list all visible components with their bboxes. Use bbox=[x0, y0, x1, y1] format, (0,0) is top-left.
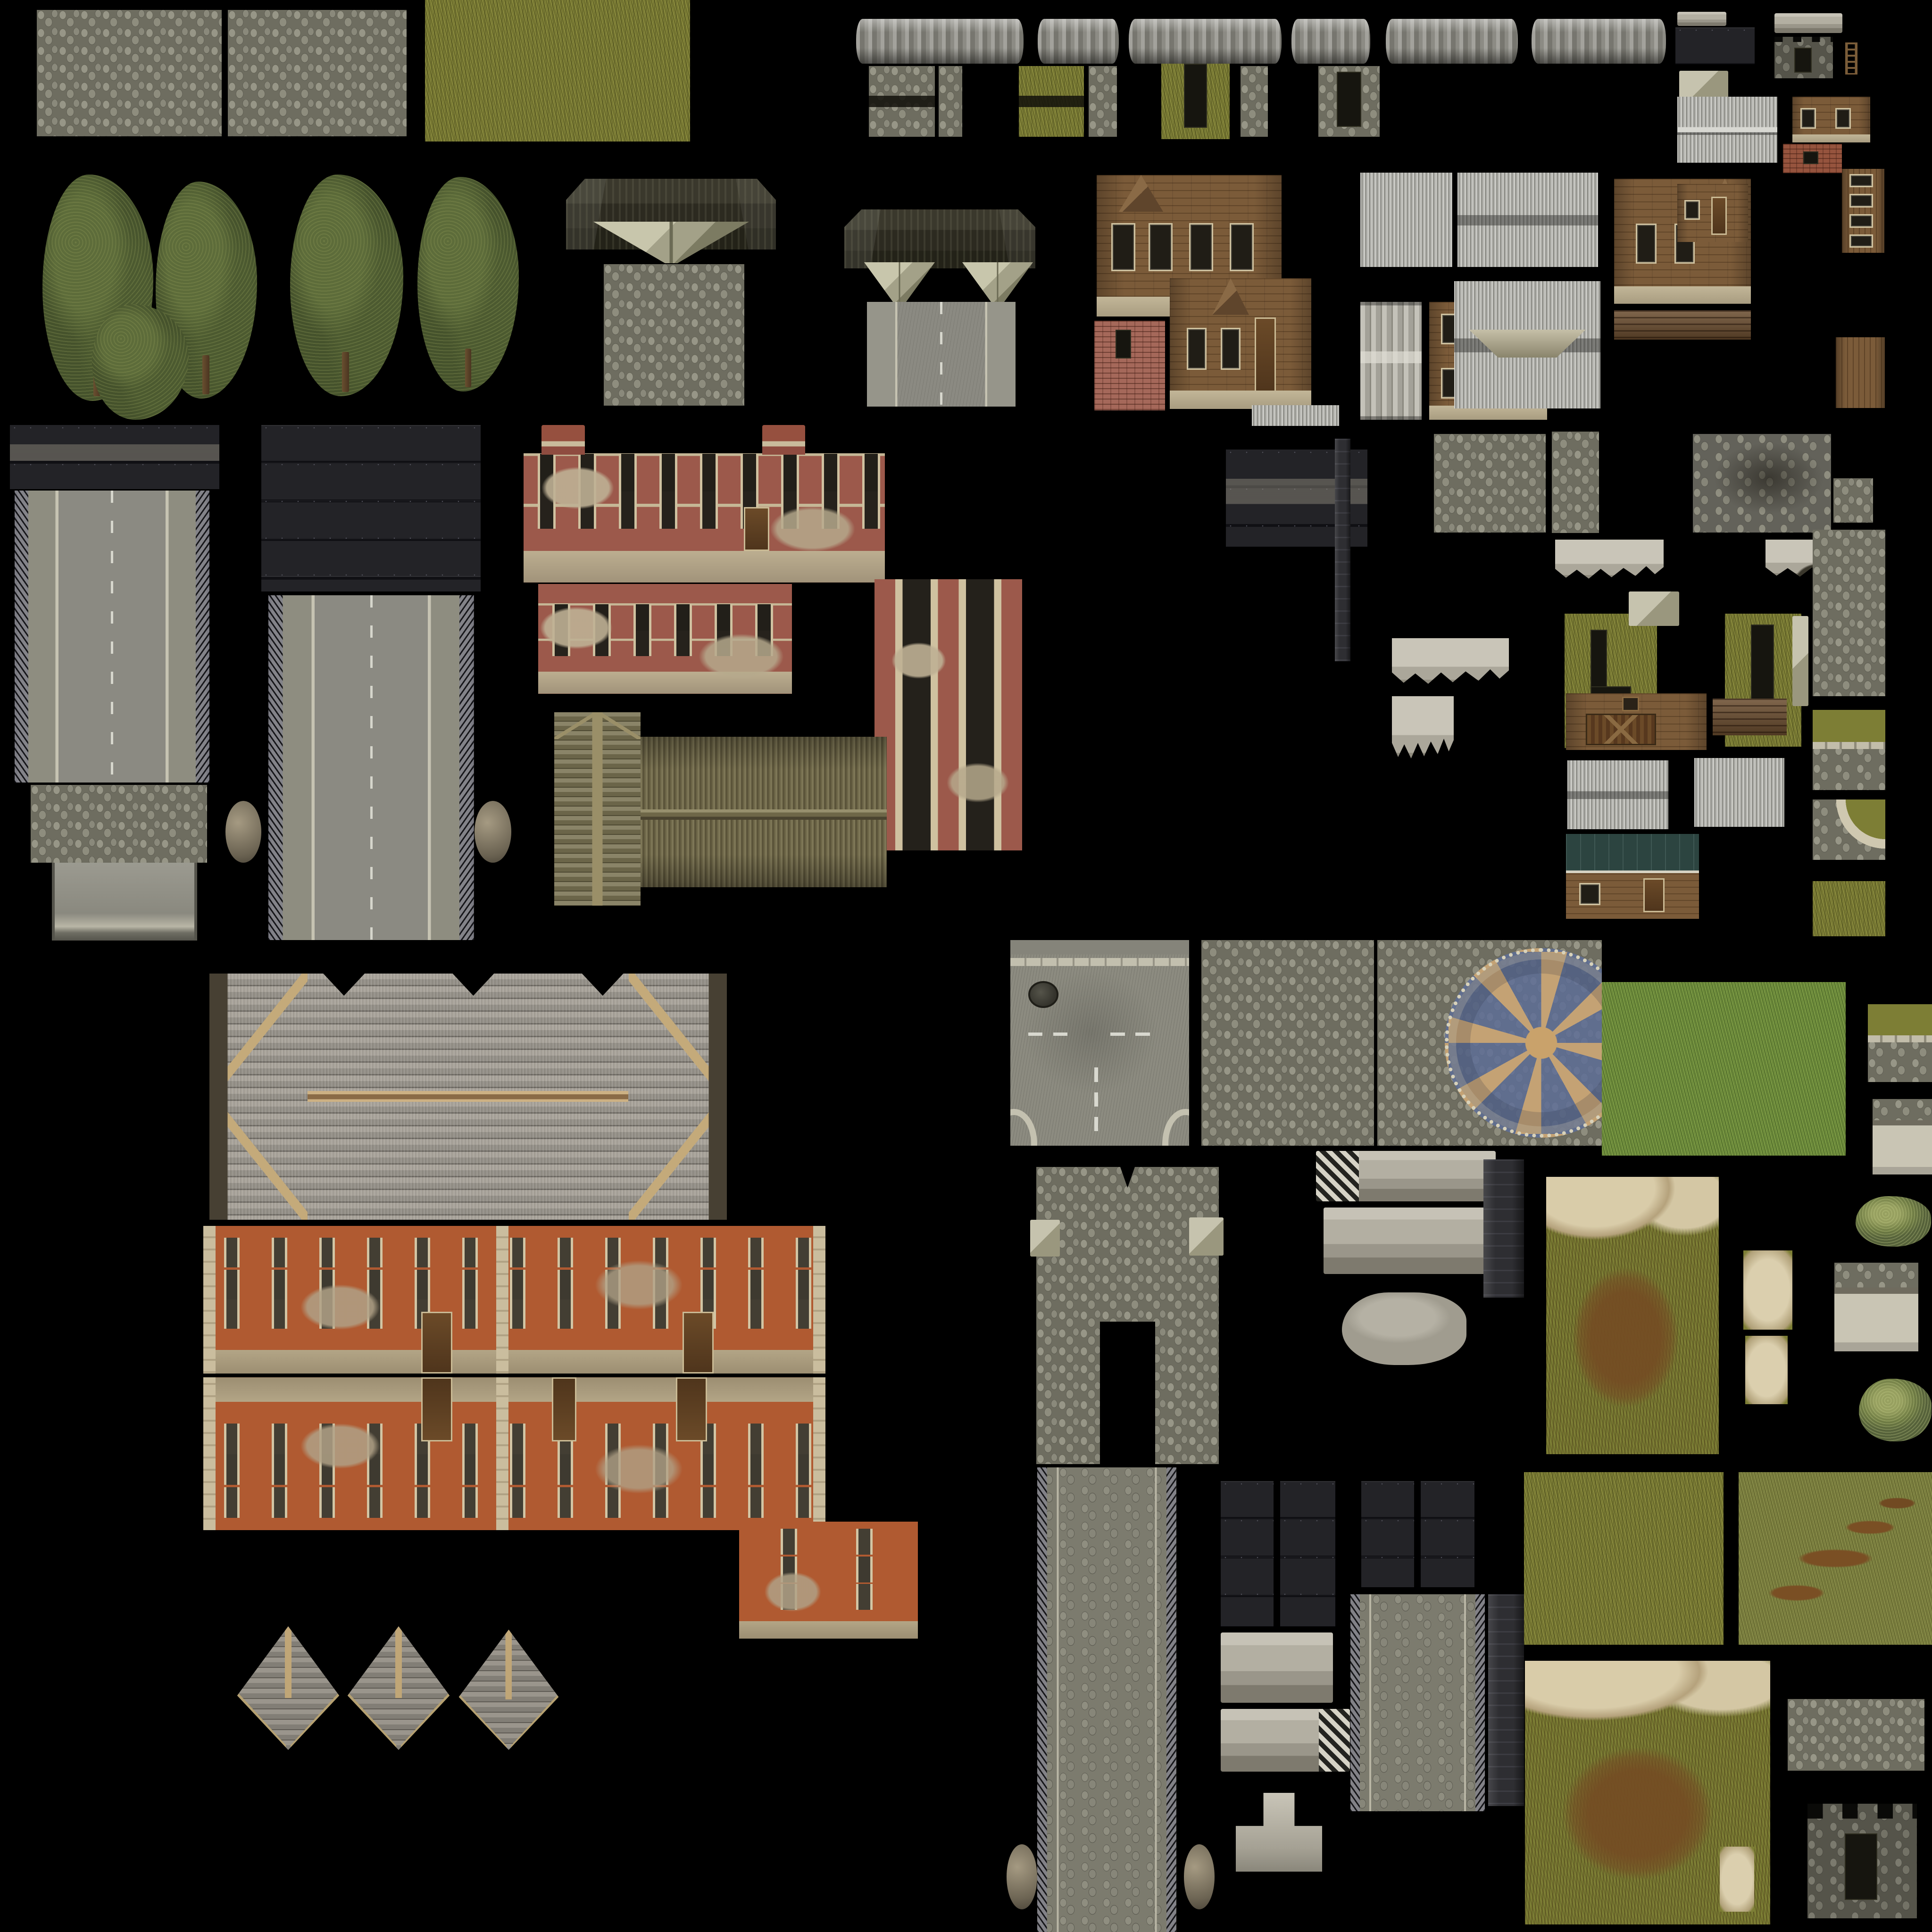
steel-panel-b2 bbox=[1280, 1481, 1335, 1626]
house-turret-a-spire bbox=[1119, 175, 1163, 212]
stone-u-small bbox=[1774, 37, 1833, 78]
house-turret-a-window bbox=[1111, 223, 1135, 271]
corrugated-c bbox=[1567, 760, 1668, 829]
wooden-barn bbox=[1566, 693, 1707, 750]
corrugated-strip-small bbox=[1252, 405, 1339, 426]
tree-b-trunk bbox=[202, 355, 209, 394]
chimney-top bbox=[1783, 144, 1842, 173]
cobble-curb-concrete-small bbox=[1834, 1263, 1918, 1351]
cabin-teal-roof-window bbox=[1579, 883, 1600, 905]
street-piece-dash bbox=[1110, 1033, 1124, 1036]
wooden-barn-hatch bbox=[1622, 697, 1639, 711]
cobble-strip-c bbox=[1241, 66, 1268, 137]
big-roof-notch bbox=[582, 974, 624, 996]
plaza-mosaic bbox=[1377, 940, 1602, 1146]
house-turret-a-window bbox=[1189, 223, 1213, 271]
cobble-curve-grass bbox=[1813, 799, 1885, 860]
tree-d bbox=[290, 175, 403, 396]
concrete-piece-b bbox=[1392, 696, 1454, 767]
big-roof-notch bbox=[323, 974, 365, 996]
tree-d-trunk bbox=[342, 352, 349, 392]
house-turret-b bbox=[1170, 278, 1311, 409]
cobble-strip-a bbox=[939, 66, 962, 137]
big-roof-collar-collar bbox=[1469, 330, 1586, 358]
cobble-fork bbox=[1036, 1167, 1219, 1464]
gate-path-a bbox=[604, 264, 744, 406]
pipe-segment-4 bbox=[1291, 19, 1370, 64]
cobble-wall-v bbox=[1552, 432, 1599, 533]
concrete-bracket-a bbox=[1679, 71, 1728, 100]
plank-windows-column-window bbox=[1849, 174, 1873, 187]
cliff-strip-a bbox=[1743, 1250, 1792, 1330]
gate-bracket-a bbox=[1030, 1220, 1060, 1257]
orange-facade-a-door bbox=[683, 1312, 714, 1374]
steel-panel-b1 bbox=[1221, 1481, 1274, 1626]
pipe-segment-5 bbox=[1386, 19, 1518, 64]
gate-wedge-b1 bbox=[864, 262, 935, 307]
road-ramp bbox=[52, 863, 197, 941]
bridge-girder-b bbox=[261, 425, 481, 591]
house-turret-b-window bbox=[1221, 328, 1241, 370]
corrugated-arrow-roof bbox=[1677, 97, 1777, 163]
wooden-barn-gate bbox=[1586, 714, 1656, 745]
gate-road bbox=[867, 302, 1016, 407]
gate-wedge-b2 bbox=[962, 262, 1033, 307]
cabin-teal-roof-door bbox=[1643, 878, 1665, 912]
plaza-mosaic-medallion bbox=[1445, 948, 1602, 1137]
steel-block-small bbox=[1675, 27, 1755, 64]
wood-beam-b bbox=[1713, 699, 1787, 735]
gate-roof-b bbox=[844, 209, 1035, 268]
steel-panel-c2 bbox=[1421, 1481, 1474, 1587]
orange-facade-b bbox=[203, 1377, 825, 1530]
kite-roof-a bbox=[234, 1626, 342, 1750]
cobble-fork-notch bbox=[1120, 1167, 1135, 1188]
cliff-strip-b bbox=[1745, 1336, 1788, 1404]
house-turret-b-door bbox=[1255, 317, 1276, 393]
olive-ribbed-roof bbox=[641, 737, 887, 887]
bridge-long bbox=[1037, 1467, 1176, 1932]
grass-dirt-branch bbox=[1739, 1472, 1932, 1645]
corrugated-d bbox=[1694, 758, 1784, 827]
ladder-small bbox=[1845, 42, 1857, 75]
bridge-road-a bbox=[15, 491, 209, 783]
street-piece-dash bbox=[1135, 1033, 1149, 1036]
stone-u-small-dark bbox=[1794, 48, 1812, 73]
grass-plain-b bbox=[1524, 1472, 1724, 1645]
bush-b bbox=[1859, 1379, 1932, 1441]
chimney-top-dark bbox=[1803, 151, 1819, 165]
grass-cliff-dirt-a bbox=[1546, 1177, 1719, 1454]
cobble-fork-bg bbox=[1100, 1322, 1155, 1464]
facade-red-main-tower bbox=[541, 425, 585, 455]
big-roof-notch bbox=[453, 974, 494, 996]
house-turret-c-window bbox=[1636, 224, 1657, 264]
plank-windows-column bbox=[1842, 169, 1884, 253]
bridge-road-b bbox=[268, 595, 474, 940]
silver-plank-column bbox=[1360, 302, 1422, 420]
tree-e-trunk bbox=[465, 349, 471, 387]
pipe-segment-2 bbox=[1038, 19, 1119, 64]
house-turret-c-base bbox=[1614, 286, 1751, 304]
street-piece-dash bbox=[1094, 1117, 1098, 1132]
stone-bumper-d bbox=[1184, 1844, 1215, 1909]
big-roof bbox=[209, 974, 727, 1220]
house-two-windows bbox=[1792, 97, 1870, 142]
orange-facade-piece bbox=[739, 1522, 918, 1639]
gate-bracket-b bbox=[1189, 1217, 1224, 1256]
wood-wall-door-window bbox=[1684, 200, 1700, 220]
plank-windows-column-window bbox=[1849, 234, 1873, 248]
street-piece-manhole bbox=[1028, 981, 1058, 1008]
barrier-plain-b bbox=[1221, 1632, 1333, 1703]
texture-atlas bbox=[0, 0, 1932, 1932]
cobble-square-small bbox=[1833, 478, 1873, 523]
street-piece-dash bbox=[1053, 1033, 1067, 1036]
cobble-concrete-tile bbox=[1873, 1099, 1932, 1174]
plank-windows-column-window bbox=[1849, 214, 1873, 227]
steel-bar-vertical bbox=[1335, 439, 1350, 661]
pink-brick-piece-dark bbox=[1116, 330, 1131, 358]
orange-facade-b-door bbox=[552, 1377, 577, 1441]
street-piece bbox=[1010, 940, 1189, 1146]
cabin-teal-roof bbox=[1566, 834, 1699, 919]
cobble-apron bbox=[31, 785, 207, 863]
stone-bumper-r bbox=[475, 801, 511, 863]
grass-tile-top bbox=[425, 0, 690, 142]
bridge-short bbox=[1350, 1594, 1485, 1811]
house-two-windows-window bbox=[1800, 108, 1816, 129]
steel-strip-a bbox=[1483, 1159, 1524, 1298]
cobble-trench-tile bbox=[1318, 66, 1380, 137]
corrugated-roof-b bbox=[1457, 173, 1598, 267]
tree-c bbox=[92, 304, 189, 420]
cobble-band-tile-band bbox=[869, 96, 935, 107]
house-two-windows-base bbox=[1792, 134, 1870, 142]
orange-facade-a-door bbox=[421, 1312, 452, 1374]
cobble-tile-b bbox=[228, 10, 407, 136]
kite-roof-b bbox=[344, 1626, 453, 1750]
street-piece-dash bbox=[1094, 1067, 1098, 1082]
concrete-t-piece bbox=[1236, 1793, 1322, 1872]
barrier-hazard-b bbox=[1221, 1709, 1350, 1772]
pipe-segment-3 bbox=[1129, 19, 1282, 64]
big-roof-collar bbox=[1454, 281, 1600, 408]
pipe-segment-1 bbox=[856, 19, 1024, 64]
cobble-column-right bbox=[1813, 530, 1885, 696]
concrete-ledge-b bbox=[1774, 13, 1842, 33]
orange-facade-a bbox=[203, 1226, 825, 1374]
wood-wall-door-door bbox=[1711, 197, 1727, 235]
cobble-wall-b bbox=[1693, 434, 1831, 533]
house-turret-a-window bbox=[1149, 223, 1173, 271]
stone-bumper-c bbox=[1007, 1844, 1037, 1909]
facade-red-small bbox=[538, 584, 792, 694]
cobble-wall-a bbox=[1434, 434, 1546, 533]
rubble-mound bbox=[1342, 1292, 1466, 1365]
orange-facade-b-door bbox=[421, 1377, 452, 1441]
stone-u-big-dark bbox=[1845, 1833, 1878, 1900]
cobble-wall-c bbox=[1788, 1699, 1924, 1771]
grass-curb-cobble-a bbox=[1813, 710, 1885, 790]
bridge-girder-a bbox=[10, 425, 219, 489]
house-turret-b-spire bbox=[1212, 278, 1249, 315]
facade-red-main-door bbox=[744, 507, 769, 551]
grass-trench-tile bbox=[1161, 64, 1230, 139]
street-piece-dash bbox=[1094, 1092, 1098, 1107]
kite-roof-c bbox=[456, 1630, 562, 1750]
grass-field-green bbox=[1602, 982, 1846, 1156]
plaza-cobble bbox=[1201, 940, 1374, 1146]
khaki-strip-vertical bbox=[1792, 616, 1808, 706]
corrugated-roof-a bbox=[1360, 173, 1452, 267]
barrier-plain-a bbox=[1324, 1207, 1489, 1274]
facade-red-main-tower bbox=[762, 425, 806, 455]
stone-u-big bbox=[1807, 1804, 1917, 1918]
cobble-trench-tile-dark bbox=[1337, 72, 1361, 127]
street-piece-dash bbox=[1028, 1033, 1042, 1036]
grass-tile-right bbox=[1813, 881, 1885, 936]
stone-bumper-l bbox=[225, 801, 261, 863]
street-piece-arc bbox=[1010, 1109, 1037, 1146]
tree-e bbox=[417, 177, 519, 391]
street-piece-arc bbox=[1162, 1109, 1189, 1146]
steel-panel-c1 bbox=[1361, 1481, 1414, 1587]
barrier-hazard-a bbox=[1316, 1151, 1496, 1201]
cobble-tile-a bbox=[37, 10, 222, 136]
concrete-ledge-a bbox=[1677, 12, 1726, 26]
cliff-bit bbox=[1720, 1847, 1754, 1912]
pipe-segment-6 bbox=[1532, 19, 1666, 64]
cobble-strip-b bbox=[1089, 66, 1117, 137]
wood-beam-piece bbox=[1614, 310, 1751, 340]
cobble-band-tile bbox=[869, 66, 935, 137]
facade-red-column bbox=[874, 579, 1022, 850]
concrete-piece-a bbox=[1392, 638, 1509, 690]
concrete-ragged-a bbox=[1555, 540, 1664, 584]
house-turret-a-window bbox=[1230, 223, 1254, 271]
wood-wall-door bbox=[1677, 184, 1748, 242]
brown-plank-tall bbox=[1836, 337, 1885, 408]
grass-trench-tile-dark bbox=[1184, 64, 1207, 128]
concrete-bracket-b bbox=[1629, 591, 1679, 626]
steel-strip-b bbox=[1488, 1594, 1524, 1806]
grass-band-tile-band bbox=[1019, 96, 1084, 107]
facade-red-main bbox=[524, 425, 885, 583]
plank-windows-column-window bbox=[1849, 194, 1873, 207]
orange-facade-b-door bbox=[676, 1377, 707, 1441]
shingle-strip-y bbox=[554, 712, 641, 906]
house-two-windows-window bbox=[1835, 108, 1851, 129]
pink-brick-piece bbox=[1094, 321, 1165, 410]
grass-band-tile bbox=[1019, 66, 1084, 137]
grass-curb-cobble-b bbox=[1868, 1004, 1932, 1082]
house-turret-b-window bbox=[1187, 328, 1207, 370]
bush-a bbox=[1856, 1196, 1931, 1247]
